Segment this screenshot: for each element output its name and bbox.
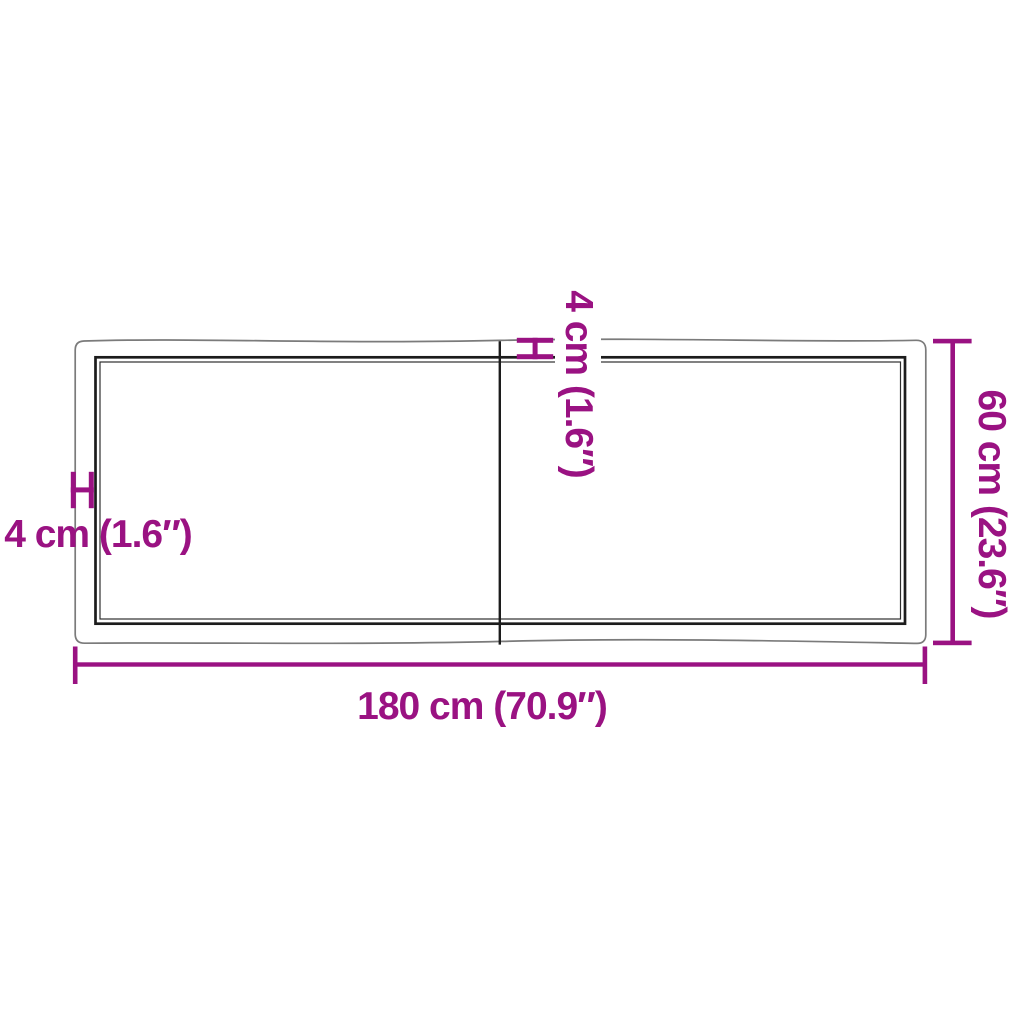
- thickness-side-marker-connector: [71, 487, 94, 492]
- thickness-top-dimension-label: 4 cm (1.6″): [555, 264, 601, 504]
- width-dimension-cap-right: [923, 647, 928, 685]
- width-dimension-cap-left: [73, 647, 78, 685]
- thickness-top-marker-connector: [533, 338, 538, 359]
- depth-dimension-cap-bottom: [933, 641, 972, 646]
- depth-dimension-label: 60 cm (23.6″): [968, 364, 1014, 644]
- depth-dimension-line: [950, 341, 955, 644]
- width-dimension-label: 180 cm (70.9″): [302, 684, 662, 730]
- thickness-side-dimension-label: 4 cm (1.6″): [0, 512, 238, 558]
- depth-dimension-cap-top: [933, 339, 972, 344]
- tabletop-dimension-diagram: 180 cm (70.9″) 60 cm (23.6″) 4 cm (1.6″)…: [0, 0, 1024, 1024]
- width-dimension-line: [73, 662, 927, 666]
